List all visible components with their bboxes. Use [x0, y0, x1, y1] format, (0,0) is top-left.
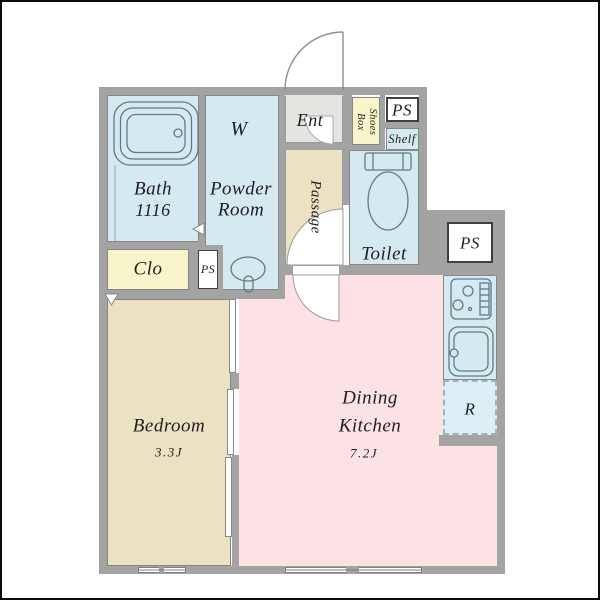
- ps-small-label: PS: [201, 263, 215, 275]
- wall-slide-connector: [231, 373, 239, 389]
- bedroom-area-label: 3.3J: [155, 446, 183, 459]
- ps-right-label: PS: [460, 235, 480, 252]
- wall-toilet-left: [343, 150, 349, 205]
- powder-room-label-2: Room: [218, 201, 264, 220]
- toilet-door-opening: [343, 205, 349, 265]
- wall-below-powder-row: [99, 290, 285, 299]
- toilet-label: Toilet: [361, 245, 407, 264]
- dk-window-divider: [346, 566, 359, 574]
- floor-plan: Bath 1116 Powder Room W Ent Passage Shoe…: [0, 0, 600, 600]
- wall-step: [419, 210, 505, 218]
- shoes-box-label-line1: Shoes: [366, 109, 378, 136]
- ps-top-label: PS: [392, 102, 412, 119]
- wall-toilet-bottom: [343, 265, 505, 275]
- sliding-door-panel-2: [227, 389, 234, 455]
- dk-label-2: Kitchen: [339, 417, 402, 436]
- wall-below-fridge: [439, 435, 505, 446]
- wall-shoes-left: [343, 95, 352, 145]
- powder-room-label-1: Powder: [210, 180, 272, 199]
- wall-bath-powder: [199, 95, 205, 249]
- kitchen-counter: [443, 275, 497, 380]
- bath-label: Bath: [134, 180, 172, 199]
- shoes-box-label-line2: Box: [354, 109, 366, 136]
- sliding-door-panel-3: [225, 457, 232, 537]
- fridge-label: R: [465, 401, 476, 418]
- bedroom-window-divider: [159, 567, 164, 573]
- sliding-door-panel-1: [229, 299, 236, 373]
- passage-label: Passage: [308, 180, 323, 234]
- dk-label-1: Dining: [342, 389, 398, 408]
- wall-left: [99, 87, 107, 574]
- closet-label: Clo: [134, 260, 163, 279]
- washer-label: W: [230, 119, 247, 139]
- entrance-label: Ent: [297, 111, 324, 129]
- dk-door-opening: [293, 266, 339, 275]
- wall-top: [99, 87, 427, 95]
- dk-area-label: 7.2J: [350, 447, 378, 460]
- shelf-label: Shelf: [388, 133, 416, 146]
- wall-bath-bottom: [99, 242, 205, 249]
- shoes-box-label: Shoes Box: [354, 109, 378, 136]
- bedroom-label: Bedroom: [133, 417, 205, 436]
- wall-bedroom-dk-lower: [232, 455, 239, 566]
- wall-right-upper: [419, 87, 427, 218]
- bath-size-label: 1116: [135, 201, 170, 219]
- entrance-door-arc: [285, 32, 343, 90]
